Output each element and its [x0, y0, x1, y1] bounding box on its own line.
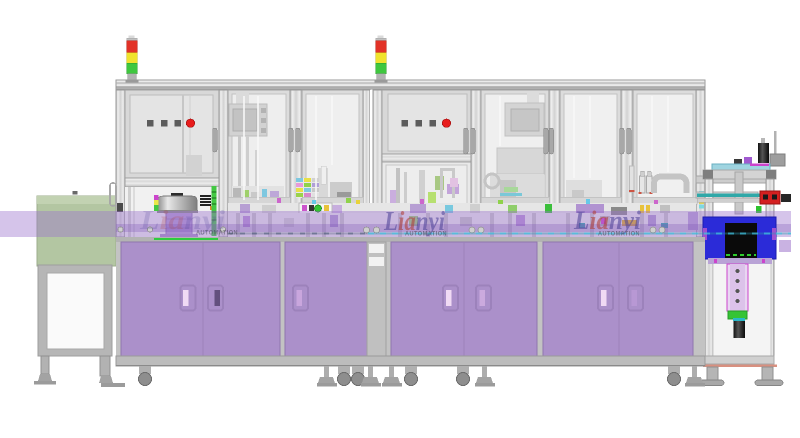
svg-text:AUTOMATION: AUTOMATION [405, 231, 447, 238]
svg-text:AUTOMATION: AUTOMATION [196, 230, 238, 237]
svg-text:AUTOMATION: AUTOMATION [598, 231, 640, 238]
